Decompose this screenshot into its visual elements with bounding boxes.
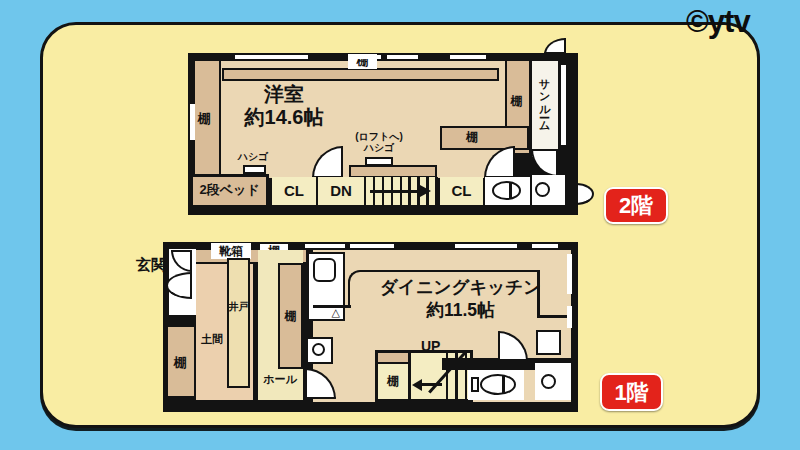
toilet-room-2f xyxy=(485,177,530,205)
washer-circle xyxy=(312,343,325,356)
washer-box xyxy=(306,337,333,364)
room-1f-name: ダイニングキッチン xyxy=(368,276,553,299)
stairs-1f-arrow-head xyxy=(412,379,422,391)
window-1f-top-1 xyxy=(305,244,345,249)
window-1f-top-2 xyxy=(350,244,394,249)
room-2f-name: 洋室 xyxy=(224,83,344,106)
floorplan-2f: 棚 棚 棚 棚 サンルーム 洋室 約14.6帖 (ロフトへ) ハシゴ ハシゴ 2… xyxy=(188,53,578,215)
loft-note: (ロフトへ) ハシゴ xyxy=(346,132,412,153)
window-1f-top-4 xyxy=(532,244,558,249)
window-1f-right-1 xyxy=(567,254,572,294)
tv-graphic-screen: { "watermark": "©ytv", "colors": { "back… xyxy=(0,0,800,450)
bath-1f-drain xyxy=(541,374,556,389)
shelf-1f-stairs: 棚 xyxy=(378,353,408,399)
stairs-1f-arrow-line xyxy=(420,383,442,386)
shelf-1f-hall xyxy=(278,263,303,369)
room-2f-label: 洋室 約14.6帖 xyxy=(224,83,344,129)
broadcaster-watermark: ©ytv xyxy=(686,4,750,40)
shelf-1f-stairs-strip xyxy=(378,353,408,364)
shelf-2f-left-label: 棚 xyxy=(197,101,211,102)
doma-label: 土間 xyxy=(196,334,228,346)
room-2f-size: 約14.6帖 xyxy=(224,106,344,129)
toilet-2f-line xyxy=(509,182,512,199)
toilet-1f-bowl xyxy=(480,374,516,395)
loft-note-line1: (ロフトへ) xyxy=(346,132,412,143)
shelf-1f-left-label: 棚 xyxy=(173,345,187,346)
closet-2f-2-label: CL xyxy=(440,183,483,199)
toilet-1f-line xyxy=(502,376,505,393)
shelf-1f-hall-label: 棚 xyxy=(284,300,297,301)
stairs-2f-arrow-head xyxy=(420,185,431,197)
stairs-2f xyxy=(366,177,438,205)
washroom-2f xyxy=(532,175,565,205)
toilet-room-1f xyxy=(468,370,524,400)
door-2f-washroom xyxy=(531,149,558,177)
stairs-down-label: DN xyxy=(318,183,364,199)
kitchen-unit: △ xyxy=(307,252,345,321)
stairs-2f-arrow-line xyxy=(370,190,424,193)
window-1f-top-3 xyxy=(455,244,517,249)
sink-box-1f xyxy=(536,330,561,355)
toilet-2f-bowl xyxy=(492,181,521,200)
window-2f-top-3 xyxy=(387,55,418,60)
ladder-label: ハシゴ xyxy=(232,152,274,163)
window-1f-right-2 xyxy=(567,306,572,328)
shelf-2f-right-label: 棚 xyxy=(510,85,523,86)
window-2f-left xyxy=(190,104,195,140)
well-label: 井戸 xyxy=(227,302,250,313)
room-1f-size: 約11.5帖 xyxy=(368,299,553,322)
room-1f-label: ダイニングキッチン 約11.5帖 xyxy=(368,276,553,322)
well xyxy=(227,258,250,388)
window-2f-right xyxy=(561,65,566,145)
ladder-box xyxy=(243,165,266,174)
hall-label: ホール xyxy=(256,374,304,386)
shelf-1f-stairs-label: 棚 xyxy=(378,375,408,388)
badge-floor1: 1階 xyxy=(600,373,663,411)
shelf-2f-top xyxy=(222,68,499,81)
shelf-2f-left xyxy=(195,61,221,178)
entrance-label: 玄関 xyxy=(136,257,166,273)
toilet-1f-tank xyxy=(471,377,479,392)
room-2f-sunroom-label: サンルーム xyxy=(538,71,550,126)
loft-note-line2: ハシゴ xyxy=(346,143,412,154)
floorplan-1f: 棚 靴箱 棚 井戸 土間 棚 ホール △ ダイニングキッチン 約11.5帖 UP… xyxy=(163,242,578,412)
bath-room-1f xyxy=(535,363,571,400)
badge-floor2: 2階 xyxy=(604,187,668,224)
window-2f-top-1 xyxy=(235,55,308,60)
counter-line-a xyxy=(313,305,351,308)
closet-2f-1-label: CL xyxy=(272,183,316,199)
washroom-2f-basin xyxy=(535,182,550,197)
shoe-box-label: 靴箱 xyxy=(211,243,251,259)
shelf-2f-inner-label: 棚 xyxy=(452,131,492,144)
window-2f-top-4 xyxy=(450,55,486,60)
kitchen-sink xyxy=(313,258,336,282)
shelf-1f-left xyxy=(166,325,196,398)
bunk-bed-label: 2段ベッド xyxy=(190,183,269,197)
stove-icon: △ xyxy=(332,306,340,319)
window-2f-top-2 xyxy=(348,55,381,60)
